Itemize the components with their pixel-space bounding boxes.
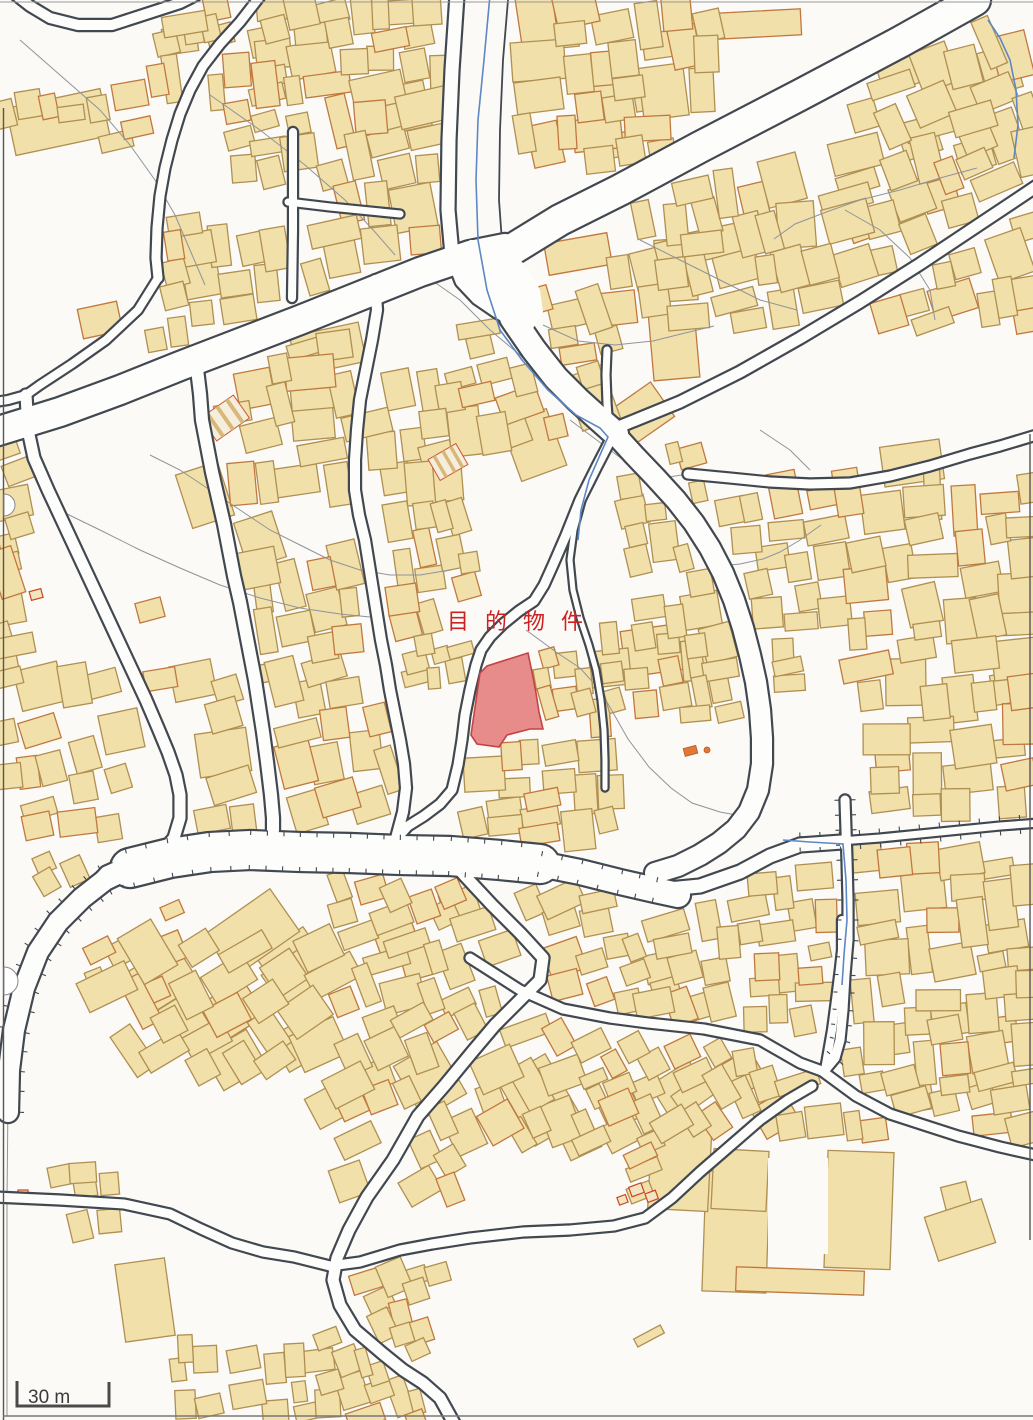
svg-text:目的物件: 目的物件 xyxy=(447,609,599,634)
svg-text:30 m: 30 m xyxy=(28,1387,70,1408)
